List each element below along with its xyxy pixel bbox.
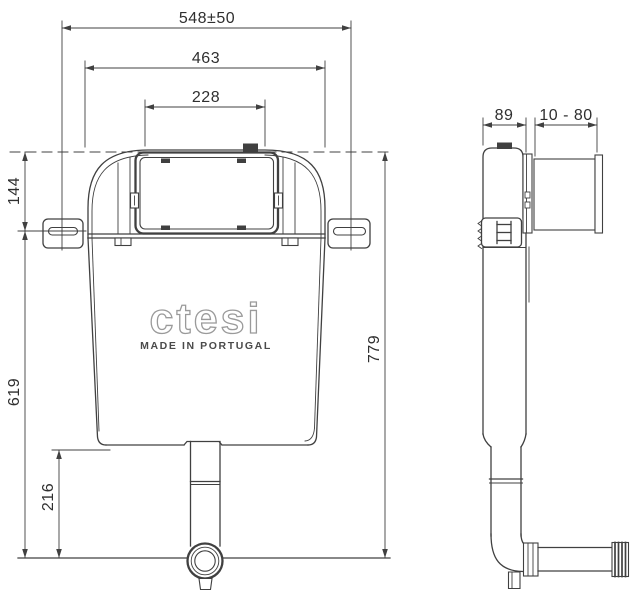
dim-adjust-range-label: 10 - 80 bbox=[539, 107, 592, 124]
horizontal-outlet-pipe bbox=[538, 548, 612, 572]
dim-panel-width-label: 228 bbox=[192, 89, 220, 106]
dim-top-width-label: 548±50 bbox=[179, 10, 235, 27]
outlet-stub bbox=[199, 579, 212, 590]
screw-mark-bottom-right bbox=[237, 226, 246, 231]
access-panel-frame bbox=[136, 153, 279, 234]
side-view bbox=[478, 143, 629, 589]
flush-pipe-front bbox=[191, 442, 221, 547]
adjustable-sleeve-hatch bbox=[534, 159, 595, 230]
brand-logo: ctesi bbox=[149, 295, 262, 343]
elbow-outer-curve bbox=[491, 534, 523, 572]
rail-foot-left bbox=[115, 238, 131, 246]
front-view: ctesi MADE IN PORTUGAL bbox=[10, 144, 390, 590]
tank-dome-outline bbox=[88, 150, 325, 238]
dim-total-height-label: 779 bbox=[366, 335, 383, 363]
tank-body-right-edge bbox=[308, 238, 325, 445]
side-top-tab bbox=[497, 143, 512, 150]
sleeve-end-rim bbox=[595, 155, 603, 233]
threaded-pipe-end bbox=[612, 543, 629, 577]
screw-mark-top-left bbox=[161, 159, 170, 164]
dim-bracket-height-label: 144 bbox=[6, 177, 23, 205]
tank-bottom-edge bbox=[106, 442, 308, 446]
technical-drawing-page: ctesi MADE IN PORTUGAL bbox=[0, 0, 632, 600]
cistern-drawing: ctesi MADE IN PORTUGAL bbox=[0, 0, 632, 600]
screw-mark-bottom-left bbox=[161, 226, 170, 231]
brand-subtitle: MADE IN PORTUGAL bbox=[140, 340, 272, 352]
access-panel-frame-inner bbox=[140, 158, 274, 230]
side-chamfer-left bbox=[483, 434, 491, 447]
wall-bracket-right bbox=[328, 219, 370, 248]
filling-valve-tab bbox=[243, 144, 258, 153]
side-frame-clip-upper bbox=[525, 192, 530, 198]
dim-depth-label: 89 bbox=[495, 107, 514, 124]
screw-mark-top-right bbox=[237, 159, 246, 164]
wall-bracket-left bbox=[43, 219, 83, 248]
side-frame-clip-lower bbox=[525, 202, 530, 208]
dim-body-height-label: 619 bbox=[6, 378, 23, 406]
outlet-flange bbox=[188, 544, 223, 590]
elbow-stub bbox=[509, 572, 521, 589]
dim-adjust-range: 10 - 80 bbox=[535, 107, 597, 156]
side-tank-outline bbox=[483, 148, 523, 218]
dim-body-height: 619 bbox=[6, 231, 28, 558]
dim-panel-width: 228 bbox=[145, 89, 265, 146]
dim-outlet-height-label: 216 bbox=[40, 483, 57, 511]
side-flush-pipe bbox=[490, 447, 523, 536]
tank-body-left-edge bbox=[88, 238, 106, 445]
dim-total-height: 779 bbox=[366, 152, 388, 558]
dimensions: 548±50 463 228 144 bbox=[6, 10, 597, 558]
dim-tank-width-label: 463 bbox=[192, 50, 220, 67]
tank-body-corner-inner-right bbox=[305, 428, 315, 441]
rail-foot-right bbox=[282, 238, 298, 246]
dim-outlet-height: 216 bbox=[40, 450, 110, 558]
dim-top-width: 548±50 bbox=[62, 10, 351, 250]
side-bracket bbox=[478, 218, 522, 249]
side-chamfer-right bbox=[521, 434, 526, 447]
outlet-connector-flange bbox=[524, 543, 539, 576]
